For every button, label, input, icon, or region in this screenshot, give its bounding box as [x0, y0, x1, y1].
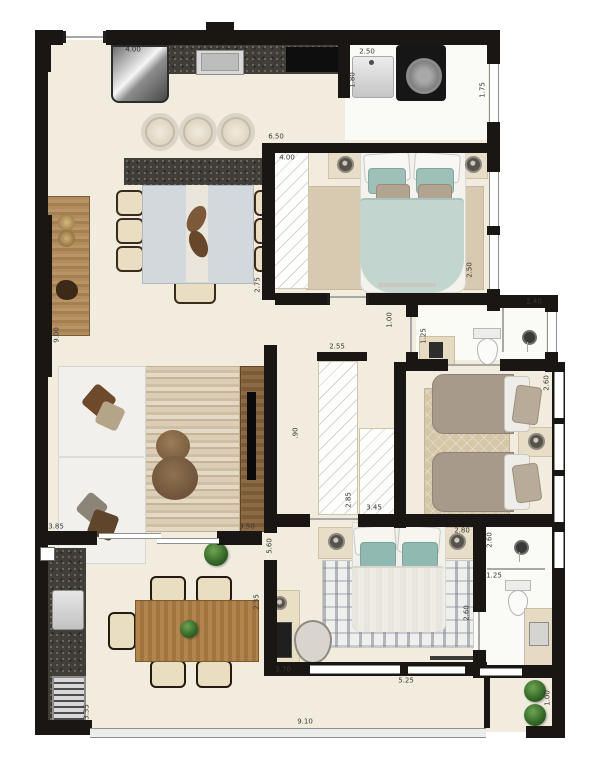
- wall-bedroom3-left: [264, 560, 277, 676]
- window: [547, 312, 557, 352]
- dining-chair: [116, 190, 144, 216]
- wall: [44, 531, 97, 545]
- dim-kitchen-wall: 1.80: [350, 72, 357, 88]
- bbq-grill: [52, 676, 86, 726]
- wall: [500, 359, 558, 371]
- door-line: [448, 364, 500, 366]
- dim-bedroom2-side: 2.60: [544, 375, 551, 391]
- dim-hall-width: 1.00: [387, 312, 394, 328]
- sliding-door: [157, 538, 219, 544]
- door-jamb: [63, 31, 66, 43]
- dim-bedroom3-top: 2.80: [454, 528, 470, 535]
- coffee-table: [152, 456, 198, 500]
- dim-laundry-window: 1.75: [480, 82, 487, 98]
- washer-drum-icon: [406, 58, 442, 94]
- decor-vase-icon: [58, 214, 75, 231]
- window: [554, 424, 564, 470]
- wall-suite1-bottom: [275, 293, 330, 305]
- window: [489, 172, 499, 226]
- pillow: [360, 542, 396, 568]
- window: [480, 668, 522, 676]
- door-line: [478, 612, 480, 650]
- dim-living-side: 9.00: [54, 327, 61, 343]
- shower-arm: [527, 342, 528, 352]
- door-line: [410, 317, 412, 352]
- door-line: [310, 518, 358, 520]
- single-bed: [432, 452, 514, 512]
- wall-pillar: [35, 215, 52, 377]
- shower-head-icon: [514, 540, 529, 555]
- dim-bath1-width: 2.40: [526, 299, 542, 306]
- dim-hall-narrow: .90: [293, 427, 300, 438]
- shower-head-icon: [522, 330, 537, 345]
- shower-divider: [487, 568, 545, 570]
- entry-door-line: [63, 36, 106, 38]
- wall-hall-top: [317, 352, 367, 361]
- door-jamb: [327, 293, 330, 305]
- wall-tv: [264, 345, 277, 533]
- plant-icon: [524, 704, 546, 726]
- window: [489, 235, 499, 289]
- wall: [217, 531, 262, 545]
- wall: [545, 295, 558, 312]
- decor-bowl-icon: [56, 280, 78, 300]
- dining-chair: [116, 218, 144, 244]
- wall-pillar: [206, 22, 234, 32]
- dim-bedroom3-side: 5.60: [267, 538, 274, 554]
- apartment-floor-plan: 4.00 2.50 1.80 1.75 6.50 4.00 2.75 2.50 …: [0, 0, 602, 768]
- table-lamp-icon: [528, 433, 545, 450]
- wall-bedroom2-left: [394, 362, 406, 528]
- window: [554, 532, 564, 568]
- bar-stool: [145, 117, 175, 147]
- wall-bath2-left: [473, 527, 486, 612]
- duvet: [360, 198, 464, 293]
- single-bed: [432, 374, 514, 434]
- wall-suite1-bottom: [368, 293, 488, 305]
- refrigerator: [111, 45, 169, 103]
- wall: [276, 514, 310, 527]
- dim-terrace-side: 2.35: [254, 594, 261, 610]
- kitchen-island: [124, 158, 282, 185]
- bed-bench: [378, 283, 436, 287]
- bar-stool: [183, 117, 213, 147]
- pillow: [511, 462, 542, 503]
- glass-railing: [90, 728, 486, 738]
- table-plant-icon: [180, 620, 198, 638]
- sofa-cushion-line: [58, 456, 144, 458]
- window: [310, 665, 400, 674]
- dim-bedroom3-width: 5.25: [398, 678, 414, 685]
- wall: [487, 226, 500, 235]
- dim-suite1-left: 2.75: [255, 277, 262, 293]
- faucet-icon: [369, 60, 374, 65]
- vanity-sink: [529, 622, 549, 646]
- table-lamp-icon: [449, 533, 466, 550]
- wall: [358, 514, 565, 527]
- kitchen-sink-basin: [201, 53, 239, 71]
- dim-living-left: 3.85: [48, 524, 64, 531]
- dim-suite1-width: 6.50: [268, 134, 284, 141]
- dim-suite1-right: 2.50: [467, 262, 474, 278]
- dim-wardrobe1: 2.85: [346, 492, 353, 508]
- shower-arm: [519, 552, 520, 562]
- wall-bath1-left: [406, 295, 418, 317]
- terrace-chair: [196, 660, 232, 688]
- wall: [35, 45, 48, 735]
- terrace-chair: [150, 660, 186, 688]
- dim-hall-length: 2.55: [329, 344, 345, 351]
- pillow: [402, 542, 438, 568]
- table-lamp-icon: [328, 533, 345, 550]
- dim-suite1-closet: 4.00: [279, 155, 295, 162]
- dim-bath1-left: 1.25: [421, 328, 428, 344]
- door-jamb: [103, 31, 106, 43]
- door-jamb: [366, 293, 369, 305]
- dim-bath2-width: 1.25: [486, 573, 502, 580]
- decor-vase-icon: [58, 230, 75, 247]
- dim-bath2-shower: 2.60: [487, 532, 494, 548]
- dim-balcony-width: 9.10: [297, 719, 313, 726]
- window: [408, 666, 465, 674]
- wall-bath1-left: [406, 352, 418, 362]
- terrace-chair: [108, 612, 136, 650]
- table-lamp-icon: [337, 156, 354, 173]
- wall-planter-left: [484, 678, 490, 728]
- door-line: [330, 296, 368, 298]
- utility-box: [40, 547, 55, 561]
- sliding-door: [99, 533, 161, 539]
- pillow: [511, 384, 542, 425]
- suite1-closet: [274, 151, 309, 289]
- dining-chair: [116, 246, 144, 272]
- wall: [106, 30, 500, 45]
- cooktop: [286, 47, 342, 72]
- wall-suite1-left: [262, 143, 275, 300]
- dim-bedroom3-right: 2.60: [464, 605, 471, 621]
- plant-icon: [204, 542, 228, 566]
- dim-laundry-width: 2.50: [359, 49, 375, 56]
- window: [554, 476, 564, 522]
- table-lamp-icon: [465, 156, 482, 173]
- shower-divider: [502, 308, 504, 352]
- terrace-sink: [52, 590, 84, 630]
- dim-terrace-left: 3.35: [84, 704, 91, 720]
- window: [554, 372, 564, 418]
- dim-planter-height: 1.00: [545, 690, 552, 706]
- wall-suite1-top: [262, 143, 500, 153]
- vanity-sink: [429, 342, 443, 358]
- wall-planter-bottom: [526, 726, 565, 738]
- dim-kitchen-depth: 4.00: [125, 47, 141, 54]
- dim-desk-length: 3.70: [275, 667, 291, 674]
- duvet: [352, 566, 444, 632]
- dim-living-right: 3.50: [239, 524, 255, 531]
- hall-wardrobe: [359, 428, 395, 515]
- dim-wardrobe2: 3.45: [366, 505, 382, 512]
- bar-stool: [221, 117, 251, 147]
- wall: [35, 720, 92, 735]
- tv: [247, 392, 256, 480]
- wall: [487, 30, 500, 64]
- window: [489, 64, 499, 122]
